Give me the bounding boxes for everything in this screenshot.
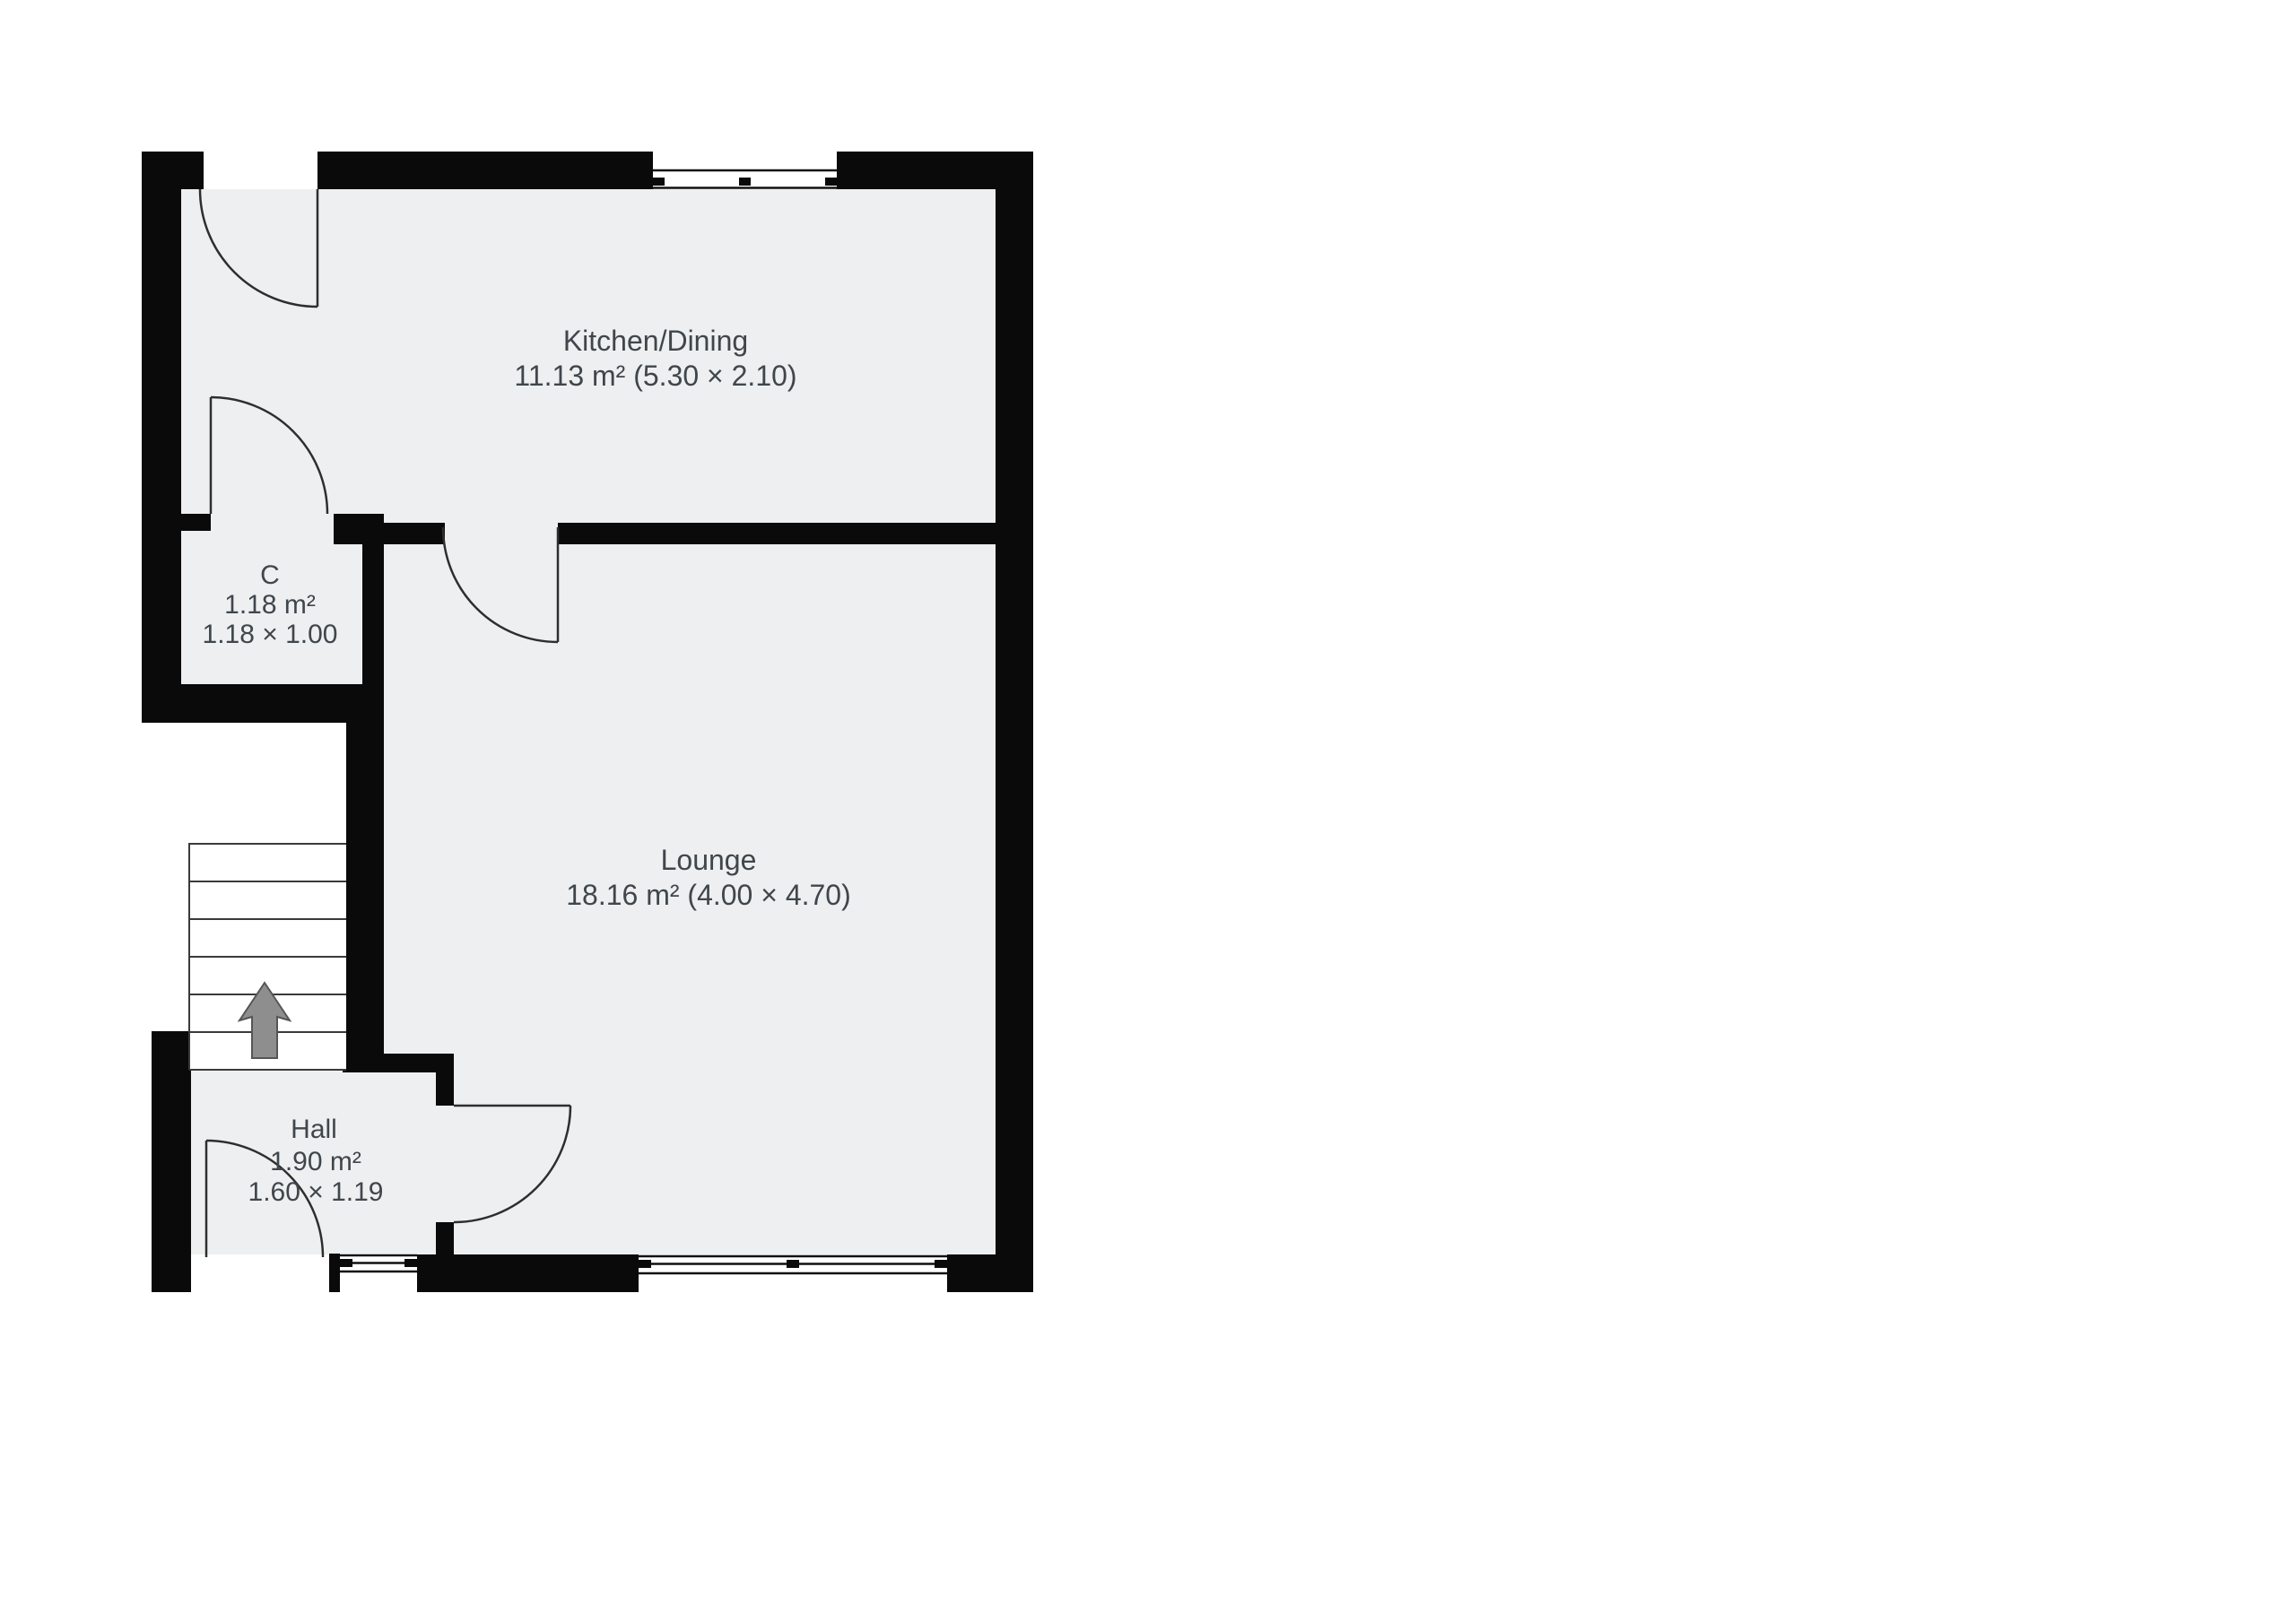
svg-text:1.18 × 1.00: 1.18 × 1.00 [203,620,338,649]
svg-text:Lounge: Lounge [661,844,757,876]
svg-text:18.16 m² (4.00 × 4.70): 18.16 m² (4.00 × 4.70) [566,879,851,911]
svg-text:C: C [260,560,280,590]
svg-text:1.18 m²: 1.18 m² [224,590,316,620]
svg-text:1.90 m²: 1.90 m² [270,1147,361,1176]
svg-text:1.60 × 1.19: 1.60 × 1.19 [248,1177,384,1207]
svg-text:Kitchen/Dining: Kitchen/Dining [563,325,748,357]
svg-text:Hall: Hall [291,1115,337,1144]
svg-text:11.13 m² (5.30 × 2.10): 11.13 m² (5.30 × 2.10) [514,360,796,392]
